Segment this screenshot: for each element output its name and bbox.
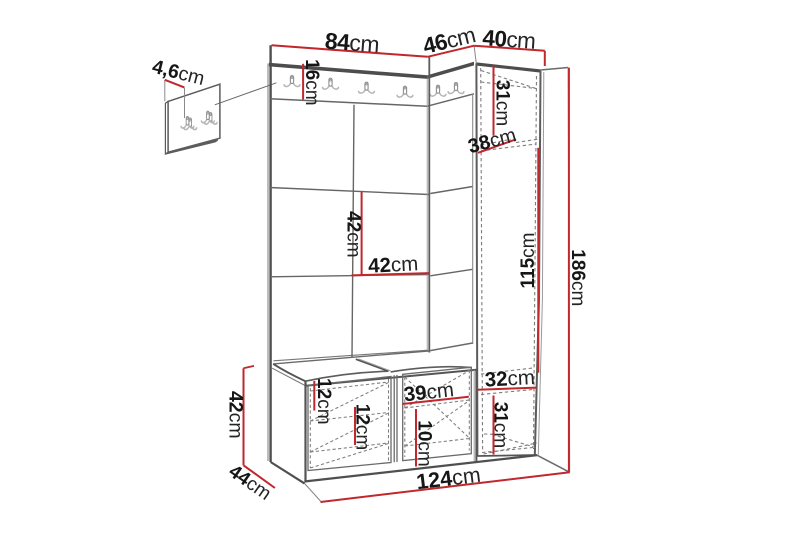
svg-text:31cm: 31cm (492, 80, 513, 126)
svg-text:16cm: 16cm (301, 59, 322, 105)
svg-text:115cm: 115cm (518, 233, 539, 289)
svg-text:12cm: 12cm (352, 404, 373, 450)
svg-text:42cm: 42cm (343, 211, 364, 257)
svg-text:12cm: 12cm (314, 378, 335, 424)
svg-text:32cm: 32cm (484, 366, 535, 392)
svg-text:40cm: 40cm (482, 25, 537, 54)
svg-text:42cm: 42cm (225, 391, 247, 439)
svg-text:10cm: 10cm (414, 420, 435, 466)
svg-text:186cm: 186cm (568, 249, 589, 306)
svg-text:31cm: 31cm (490, 402, 511, 448)
svg-text:42cm: 42cm (368, 252, 419, 278)
svg-text:84cm: 84cm (324, 28, 380, 58)
